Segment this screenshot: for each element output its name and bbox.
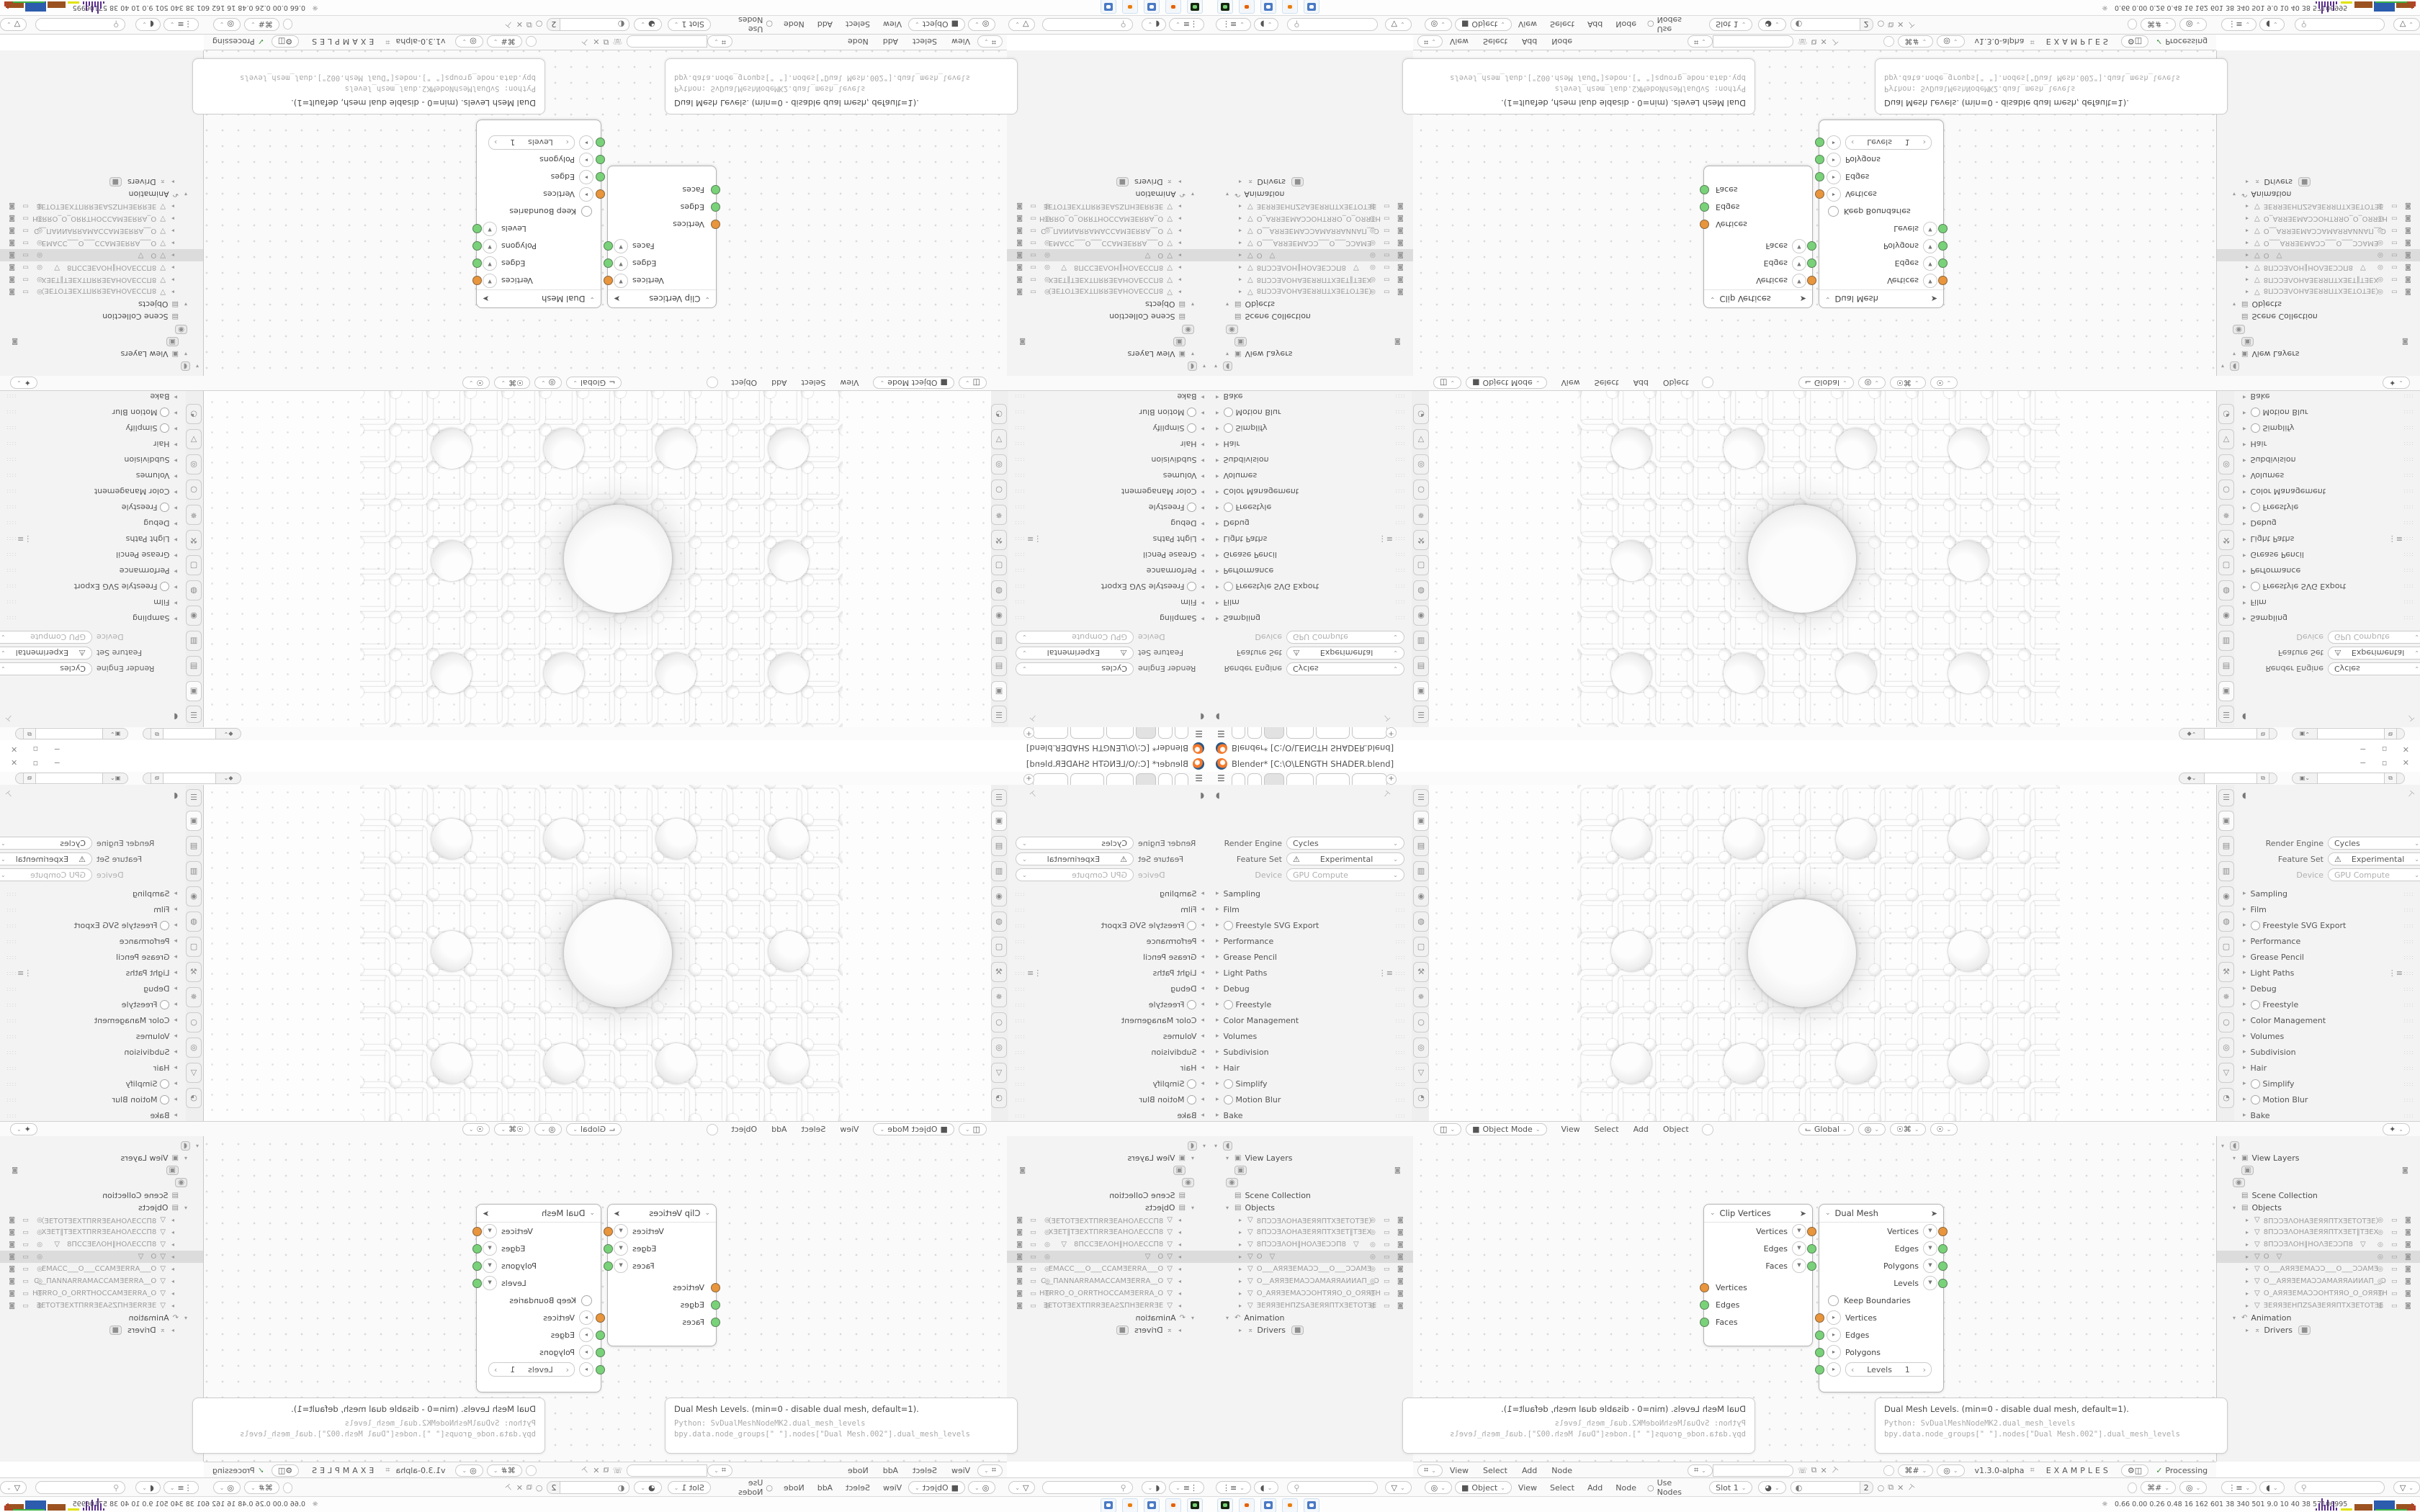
output-socket[interactable] [1807,1244,1816,1254]
mode-dropdown[interactable]: ■Object Mode⌄ [1466,377,1546,389]
world-icon[interactable]: ◉ [1226,1178,1238,1187]
outliner-object-row[interactable]: ▸ ▽ ƎEЯЯƎEHПZSАƎEЯЯПTXƎETOTƎE ◎ ▭ ◙ [1210,200,1413,212]
section-toggle[interactable] [2251,1079,2260,1089]
disable-render-icon[interactable]: ◙ [6,276,15,284]
snap-circle-icon[interactable] [526,37,537,48]
hide-eye-icon[interactable]: ◎ [2378,228,2386,235]
taskbar-app-icon[interactable] [1239,1498,1255,1512]
device-dropdown[interactable]: GPU Compute⌄ [0,631,92,644]
scene-collection-label[interactable]: Scene Collection [1109,1191,1175,1200]
properties-tab[interactable]: ◎ [1413,1038,1429,1058]
properties-section-row[interactable]: ▸ Sampling :::: [1216,886,1406,901]
properties-tab[interactable]: ▽ [2218,429,2234,449]
outliner-object-row[interactable]: ▸ ▽ 8ПƆƆƎΛOHАƎEЯЯПTXƎETOTƎE〉 ◎ ▭ ◙ [1210,286,1413,298]
disable-render-icon[interactable]: ◙ [2405,1229,2414,1236]
tree-type-icon[interactable]: ⌗⌄ [1688,1464,1713,1477]
pin-icon[interactable]: ⊤ [2405,788,2416,800]
view-layers-label[interactable]: View Layers [1245,349,1292,359]
view-menu[interactable]: View [1450,37,1469,47]
properties-section-row[interactable]: ▸ Freestyle :::: [1014,500,1204,516]
render-engine-dropdown[interactable]: Cycles⌄ [0,837,92,850]
shader-object-dropdown[interactable]: ■Object⌄ [1455,18,1512,31]
animation-label[interactable]: Animation [129,1313,169,1323]
properties-tab[interactable]: ▥ [1413,631,1429,651]
pin-icon[interactable]: ⊤ [2405,711,2416,723]
properties-section-row[interactable]: ▸ Freestyle SVG Export :::: [1014,917,1204,933]
disable-render-icon[interactable]: ◙ [1014,252,1023,259]
properties-tab[interactable]: ▢ [991,937,1007,957]
taskbar-app-icon[interactable] [1304,0,1319,14]
properties-section-row[interactable]: ▸ Subdivision :::: [1216,1044,1406,1060]
output-socket[interactable] [1938,1279,1948,1288]
plug-icon[interactable]: ▸ [1827,153,1841,167]
properties-tab[interactable]: ▥ [186,631,202,651]
material-icon-button[interactable]: ◕⌄ [634,18,661,31]
shader-editor-type[interactable]: ◎⌄ [968,1481,995,1494]
properties-tab[interactable]: ▢ [1413,555,1429,575]
hide-eye-icon[interactable]: ◎ [34,1290,42,1297]
outliner-object-row[interactable]: ▸ ▽ O_AЯЯƎEMAƆƆOHTЯЯO_O_OЯЯTH ◎ ▭ ◙ [2217,1287,2420,1300]
socket-menu-icon[interactable]: ▼ [483,1276,497,1290]
window-controls[interactable]: − ▫ ✕ [4,744,60,754]
select-menu[interactable]: Select [1550,20,1574,30]
section-toggle[interactable] [2251,582,2260,592]
disable-viewport-icon[interactable]: ▭ [2391,1302,2400,1310]
section-toggle[interactable] [2251,921,2260,930]
collapse-icon[interactable]: ⌄ [704,1210,710,1217]
hide-eye-icon[interactable]: ◎ [1370,1302,1379,1310]
outliner-object-row[interactable]: ▸ ▽ ƎEЯЯƎEHПZSАƎEЯЯПTXƎETOTƎE ◎ ▭ ◙ [2217,1300,2420,1312]
use-nodes-checkbox[interactable]: ○ [1647,20,1654,30]
outliner-object-row[interactable]: ▸ ▽ ƎEЯЯƎEHПZSАƎEЯЯПTXƎETOTƎE ◎ ▭ ◙ [1210,1300,1413,1312]
material-slot-dropdown[interactable]: Slot 1⌄ [668,18,711,31]
disable-viewport-icon[interactable]: ▭ [2391,228,2400,235]
socket-menu-icon[interactable]: ▼ [1923,239,1937,253]
pin-icon[interactable]: ⊤ [503,1482,515,1493]
disable-viewport-icon[interactable]: ▭ [1384,215,1392,222]
socket-menu-icon[interactable]: ▼ [1923,1276,1937,1290]
properties-tab[interactable]: ▣ [1413,681,1429,701]
properties-section-row[interactable]: ▸ Freestyle SVG Export :::: [6,917,177,933]
disable-viewport-icon[interactable]: ▭ [1384,1254,1392,1261]
properties-tab[interactable]: ▤ [1413,656,1429,676]
properties-section-row[interactable]: ▸ Debug :::: [1216,981,1406,996]
add-menu[interactable]: Add [1587,1483,1603,1493]
outliner-filter-button[interactable]: ▽⌄ [1008,18,1035,31]
snap-magnet-button[interactable]: ☉⌘⌄ [494,377,530,389]
properties-tab[interactable]: ▣ [2218,681,2234,701]
disable-viewport-icon[interactable]: ▭ [2391,1266,2400,1273]
animation-label[interactable]: Animation [1244,189,1284,199]
properties-tab[interactable]: ▥ [2218,631,2234,651]
output-socket[interactable] [1938,225,1948,234]
use-nodes-checkbox[interactable]: ○ [766,20,773,30]
input-socket[interactable] [596,1348,605,1357]
properties-tab[interactable]: ▤ [991,656,1007,676]
properties-section-row[interactable]: ▸ Light Paths ⋮≡ :::: [6,531,177,547]
outliner-object-row[interactable]: ▸ ▽ 8ПƆƆƎΛOHАƎEЯЯПTXƎET‖TƎEX ◎ ▭ ◙ [1210,1226,1413,1238]
scene-collection-label[interactable]: Scene Collection [1109,312,1175,321]
disable-viewport-icon[interactable]: ▭ [1028,240,1036,247]
outliner-search-input[interactable]: ⚲ [1043,18,1133,31]
properties-tab[interactable]: ▽ [1413,429,1429,449]
socket-menu-icon[interactable]: ▼ [1923,274,1937,288]
hide-eye-icon[interactable]: ◎ [1370,240,1379,247]
disable-viewport-icon[interactable]: ▭ [2391,1290,2400,1297]
title-bar[interactable]: Blender* [C:\O\LENGTH SHADER.blend] − ▫ … [0,739,1210,756]
disable-render-icon[interactable]: ◙ [6,1254,15,1261]
disable-render-icon[interactable]: ◙ [1397,1254,1406,1261]
section-toggle[interactable] [1224,1000,1233,1009]
properties-section-row[interactable]: ▸ Freestyle SVG Export :::: [2243,579,2414,595]
filter-tab-icon[interactable]: ☰ [2218,789,2234,806]
hide-eye-icon[interactable]: ◎ [2378,1278,2386,1285]
disable-viewport-icon[interactable]: ▭ [1028,1254,1036,1261]
camera-icon[interactable]: ◙ [2402,338,2411,346]
animation-label[interactable]: Animation [1244,1313,1284,1323]
disable-render-icon[interactable]: ◙ [1397,252,1406,259]
socket-menu-icon[interactable]: ▼ [483,239,497,253]
camera-icon[interactable]: ◙ [1017,338,1026,346]
view-layer-selector[interactable]: ▣⌄⧉ [4,773,128,783]
properties-section-row[interactable]: ▸ Film :::: [6,595,177,611]
outliner-object-row[interactable]: ▸ ▽ O__AЯЯƎEMAƆƆAMAЯЯAИИAП__Ɔ ◎ ▭ ◙ [0,1275,203,1287]
hide-eye-icon[interactable]: ◎ [1041,264,1050,271]
outliner-object-row[interactable]: ▸ ▽ O__AЯЯƎEMAƆƆAMAЯЯAИИAП__Ɔ ◎ ▭ ◙ [1210,1275,1413,1287]
taskbar-app-icon[interactable] [1282,1498,1298,1512]
properties-section-row[interactable]: ▸ Light Paths ⋮≡ :::: [1216,965,1406,981]
properties-section-row[interactable]: ▸ Debug :::: [2243,981,2414,996]
editor-type-button[interactable]: ⌗⌄ [977,36,1003,48]
plug-icon[interactable]: ▸ [1827,170,1841,184]
disable-render-icon[interactable]: ◙ [6,1241,15,1248]
properties-tab[interactable]: ◎ [2218,454,2234,474]
properties-section-row[interactable]: ▸ Motion Blur :::: [1216,1092,1406,1107]
add-menu[interactable]: Add [1587,20,1603,30]
disable-viewport-icon[interactable]: ▭ [20,228,29,235]
hide-eye-icon[interactable]: ◎ [2378,1266,2386,1273]
outliner-display-mode[interactable]: ⋮≡⌄ [163,1481,199,1494]
disable-render-icon[interactable]: ◙ [1397,1241,1406,1248]
filter-tab-icon[interactable]: ☰ [1413,706,1429,723]
drivers-label[interactable]: Drivers [127,1326,156,1335]
scene-name-field[interactable] [163,728,215,739]
taskbar-app-icon[interactable] [1122,0,1138,14]
snap-mode-button[interactable]: ⌘#⌄ [487,1464,522,1477]
properties-tab[interactable]: ◍ [1413,580,1429,600]
hide-eye-icon[interactable]: ◎ [1041,276,1050,284]
output-socket[interactable] [604,276,613,286]
outliner-filter-button[interactable]: ▽⌄ [1385,18,1412,31]
shader-object-dropdown[interactable]: ■Object⌄ [1455,1481,1512,1494]
processing-toggle[interactable]: Processing [2165,37,2208,47]
view-layer-field[interactable] [2318,728,2385,739]
dual-mesh-node[interactable]: ⌄Dual Mesh➤ Vertices▼Edges▼Polygons▼Leve… [476,120,601,308]
output-socket[interactable] [472,1244,482,1254]
properties-tab[interactable]: ▢ [186,555,202,575]
properties-tab[interactable]: ▤ [186,836,202,856]
disable-render-icon[interactable]: ◙ [1397,1278,1406,1285]
properties-tab[interactable]: ▽ [1413,1063,1429,1083]
outliner-search-input[interactable]: ⚲ [1287,18,1377,31]
view-layers-label[interactable]: View Layers [121,349,169,359]
add-menu[interactable]: Add [883,1466,898,1475]
outliner-search-input[interactable]: ⚲ [1287,1481,1377,1494]
hide-eye-icon[interactable]: ◎ [34,1278,42,1285]
material-user-count[interactable]: 2 [1860,1481,1873,1494]
scene-collection-label[interactable]: Scene Collection [1245,312,1310,321]
properties-section-row[interactable]: ▸ Freestyle SVG Export :::: [6,579,177,595]
levels-stepper[interactable]: ‹Levels1› [488,1362,575,1377]
outliner-type-icon[interactable]: ◖⌄ [1142,1481,1167,1494]
disable-render-icon[interactable]: ◙ [6,1290,15,1297]
select-menu[interactable]: Select [846,1483,870,1493]
object-menu[interactable]: Object [1663,1125,1689,1134]
properties-section-row[interactable]: ▸ Performance :::: [2243,563,2414,579]
properties-section-row[interactable]: ▸ Grease Pencil :::: [1216,949,1406,965]
taskbar-app-icon[interactable] [1101,1498,1116,1512]
taskbar-app-icon[interactable] [1165,0,1181,14]
disable-viewport-icon[interactable]: ▭ [2391,1217,2400,1224]
disable-render-icon[interactable]: ◙ [1014,1290,1023,1297]
properties-tab[interactable]: ◔ [991,1088,1007,1108]
hide-eye-icon[interactable]: ◎ [1370,1241,1379,1248]
view-layers-label[interactable]: View Layers [2251,1153,2299,1163]
disable-viewport-icon[interactable]: ▭ [20,1229,29,1236]
hide-eye-icon[interactable]: ◎ [1370,203,1379,210]
disable-render-icon[interactable]: ◙ [1014,264,1023,271]
properties-section-row[interactable]: ▸ Bake :::: [2243,1107,2414,1121]
plug-icon[interactable]: ▸ [579,1345,593,1359]
world-icon[interactable]: ◉ [1226,325,1238,334]
properties-tab[interactable]: ▽ [186,429,202,449]
outliner-object-row[interactable]: ▸ ▽ O_AЯЯƎEMAƆƆOHTЯЯO_O_OЯЯTH ◎ ▭ ◙ [1007,212,1210,225]
feature-set-dropdown[interactable]: ⚠Experimental⌄ [2328,852,2420,865]
section-toggle[interactable] [160,1095,169,1104]
workspace-tab[interactable] [1158,727,1173,739]
properties-section-row[interactable]: ▸ Film :::: [6,901,177,917]
hide-eye-icon[interactable]: ◎ [2378,1217,2386,1224]
disable-render-icon[interactable]: ◙ [1397,228,1406,235]
properties-section-row[interactable]: ▸ Subdivision :::: [2243,452,2414,468]
socket-menu-icon[interactable]: ▼ [483,222,497,236]
outliner-object-row[interactable]: ▸ ▽ O ▽ ◎ ▭ ◙ [1007,1251,1210,1263]
socket-menu-icon[interactable]: ▼ [1923,1224,1937,1238]
plug-icon[interactable]: ▸ [579,135,593,150]
buffer-icon[interactable]: ➤ [1931,294,1937,304]
editor-type-button[interactable]: ◫⌄ [959,377,987,389]
hide-eye-icon[interactable]: ◎ [2378,215,2386,222]
animation-label[interactable]: Animation [129,189,169,199]
keep-boundaries-checkbox[interactable] [1828,1295,1839,1306]
drivers-label[interactable]: Drivers [127,177,156,186]
workspace-tabs[interactable] [1232,773,1387,785]
outliner-object-row[interactable]: ▸ ▽ O_AЯЯƎEMAƆƆOHTЯЯO_O_OЯЯTH ◎ ▭ ◙ [0,212,203,225]
snap-mode-button[interactable]: ⌘#⌄ [244,18,279,31]
drivers-label[interactable]: Drivers [1134,177,1163,186]
outliner-object-row[interactable]: ▸ ▽ 8ПƆƆƎΛOH‖HOΛƎEƆƆП8 ▽ ◎ ▭ ◙ [0,1238,203,1251]
disable-viewport-icon[interactable]: ▭ [1028,289,1036,296]
orientation-dropdown[interactable]: ⌙Global⌄ [566,377,622,389]
copy-view-layer-icon[interactable]: ⧉ [2385,728,2397,739]
node-menu[interactable]: Node [784,20,805,30]
properties-tab[interactable]: ◔ [2218,404,2234,424]
socket-menu-icon[interactable]: ▼ [614,1259,628,1273]
properties-section-row[interactable]: ▸ Debug :::: [1216,516,1406,531]
material-name-field[interactable]: ◐ [1791,1481,1860,1494]
shield-icon[interactable]: ○ [536,1483,543,1493]
socket-menu-icon[interactable]: ▼ [614,256,628,271]
plug-icon[interactable]: ▸ [1827,187,1841,202]
properties-tab[interactable]: ✵ [186,505,202,525]
outliner-object-row[interactable]: ▸ ▽ O__AЯЯƎEMAƆƆAMAЯЯAИИAП__Ɔ ◎ ▭ ◙ [2217,225,2420,237]
hide-eye-icon[interactable]: ◎ [1370,228,1379,235]
viewport-3d[interactable] [204,785,991,1121]
outliner-object-row[interactable]: ▸ ▽ O___AЯЯƎEMAƆƆ___O___ƆƆAMƎ ◎ ▭ ◙ [1007,1263,1210,1275]
properties-section-row[interactable]: ▸ Light Paths ⋮≡ :::: [2243,531,2414,547]
properties-section-row[interactable]: ▸ Color Management :::: [2243,1012,2414,1028]
input-socket[interactable] [711,186,720,195]
node-menu[interactable]: Node [848,1466,869,1475]
outliner-object-row[interactable]: ▸ ▽ O__AЯЯƎEMAƆƆAMAЯЯAИИAП__Ɔ ◎ ▭ ◙ [1210,225,1413,237]
hide-eye-icon[interactable]: ◎ [2378,289,2386,296]
scene-collection-label[interactable]: Scene Collection [2251,1191,2317,1200]
properties-section-row[interactable]: ▸ Motion Blur :::: [1014,405,1204,420]
properties-icon[interactable]: ◖ [2230,1141,2239,1151]
properties-tab[interactable]: ◍ [2218,912,2234,932]
shield-icon[interactable]: ○ [536,20,543,30]
disable-viewport-icon[interactable]: ▭ [20,1241,29,1248]
unlink-icon[interactable]: ✕ [1821,1466,1827,1475]
shading-button[interactable]: ✦⌄ [10,1123,37,1135]
buffer-icon[interactable]: ➤ [614,1209,620,1218]
disable-viewport-icon[interactable]: ▭ [1028,1229,1036,1236]
properties-icon[interactable]: ◖ [1188,361,1197,371]
socket-menu-icon[interactable]: ▼ [1792,1241,1806,1256]
output-socket[interactable] [604,1261,613,1271]
plug-icon[interactable]: ▸ [579,1310,593,1325]
properties-section-row[interactable]: ▸ Simplify :::: [1216,1076,1406,1092]
snap-circle-icon[interactable] [526,1465,537,1476]
properties-tab[interactable]: ◍ [186,912,202,932]
scene-collection-label[interactable]: Scene Collection [1245,1191,1310,1200]
filter-tab-icon[interactable]: ☰ [991,706,1007,723]
objects-label[interactable]: Objects [2251,1203,2282,1212]
add-menu[interactable]: Add [817,1483,833,1493]
properties-tab[interactable]: ⚒ [2218,530,2234,550]
mode-dropdown[interactable]: ■Object Mode⌄ [1466,1123,1546,1135]
filter-tab-icon[interactable]: ☰ [991,789,1007,806]
properties-section-row[interactable]: ▸ Volumes :::: [1216,468,1406,484]
material-icon-button[interactable]: ◕⌄ [634,1481,661,1494]
material-icon-button[interactable]: ◕⌄ [1758,1481,1785,1494]
disable-viewport-icon[interactable]: ▭ [1028,252,1036,259]
properties-section-row[interactable]: ▸ Debug :::: [1014,516,1204,531]
material-user-count[interactable]: 2 [547,18,560,31]
drivers-label[interactable]: Drivers [2264,177,2293,186]
workspace-tab[interactable] [1316,727,1350,739]
render-engine-dropdown[interactable]: Cycles⌄ [0,662,92,675]
search-circle-icon[interactable] [707,1124,718,1135]
disable-render-icon[interactable]: ◙ [2405,252,2414,259]
add-workspace-button[interactable]: + [1023,727,1034,738]
outliner-filter-button[interactable]: ▽⌄ [0,1481,27,1494]
disable-render-icon[interactable]: ◙ [1397,1302,1406,1310]
snap-mode-button[interactable]: ⌘#⌄ [2141,18,2176,31]
select-menu[interactable]: Select [1550,1483,1574,1493]
properties-section-row[interactable]: ▸ Sampling :::: [1216,611,1406,626]
properties-section-row[interactable]: ▸ Volumes :::: [2243,1028,2414,1044]
workspace-tab[interactable] [1136,773,1156,785]
viewport-3d[interactable] [204,391,991,727]
disable-render-icon[interactable]: ◙ [1397,1217,1406,1224]
outliner-filter-button[interactable]: ▽⌄ [0,18,27,31]
properties-section-row[interactable]: ▸ Light Paths ⋮≡ :::: [1014,965,1204,981]
disable-render-icon[interactable]: ◙ [1014,289,1023,296]
animation-label[interactable]: Animation [1136,189,1176,199]
node-menu[interactable]: Node [1551,37,1572,47]
pin-icon[interactable]: ⊤ [1829,1464,1840,1476]
disable-viewport-icon[interactable]: ▭ [1384,1290,1392,1297]
disable-viewport-icon[interactable]: ▭ [1384,228,1392,235]
hide-eye-icon[interactable]: ◎ [34,264,42,271]
pin-icon[interactable]: ⊤ [1905,1482,1917,1493]
disable-viewport-icon[interactable]: ▭ [20,240,29,247]
material-name-field[interactable]: ◐ [560,1481,629,1494]
properties-tab[interactable]: ⚒ [991,530,1007,550]
snap-element-button[interactable]: ◎⌄ [2179,18,2207,31]
outliner-object-row[interactable]: ▸ ▽ O ▽ ◎ ▭ ◙ [2217,249,2420,261]
socket-menu-icon[interactable]: ▼ [1792,239,1806,253]
properties-tab[interactable]: ▣ [1413,811,1429,831]
disable-viewport-icon[interactable]: ▭ [1384,289,1392,296]
plug-icon[interactable]: ▸ [1827,1328,1841,1342]
properties-section-row[interactable]: ▸ Freestyle SVG Export :::: [1014,579,1204,595]
outliner-object-row[interactable]: ▸ ▽ ƎEЯЯƎEHПZSАƎEЯЯПTXƎETOTƎE ◎ ▭ ◙ [0,200,203,212]
properties-section-row[interactable]: ▸ Subdivision :::: [6,452,177,468]
disable-viewport-icon[interactable]: ▭ [2391,203,2400,210]
snap-mode-button[interactable]: ⌘#⌄ [487,36,522,48]
properties-section-row[interactable]: ▸ Performance :::: [2243,933,2414,949]
properties-tab[interactable]: ✵ [2218,987,2234,1007]
properties-tab[interactable]: ▽ [2218,1063,2234,1083]
clip-vertices-node[interactable]: ⌄Clip Vertices➤ Vertices▼Edges▼Faces▼ Ve… [1703,166,1813,308]
socket-menu-icon[interactable]: ▼ [1923,256,1937,271]
properties-tab[interactable]: ▤ [1413,836,1429,856]
outliner-object-row[interactable]: ▸ ▽ 8ПƆƆƎΛOH‖HOΛƎEƆƆП8 ▽ ◎ ▭ ◙ [1007,261,1210,274]
section-toggle[interactable] [1224,503,1233,513]
disable-viewport-icon[interactable]: ▭ [20,203,29,210]
disable-render-icon[interactable]: ◙ [1397,203,1406,210]
input-socket[interactable] [596,1331,605,1340]
dual-mesh-node[interactable]: ⌄Dual Mesh➤ Vertices▼Edges▼Polygons▼Leve… [1819,120,1944,308]
hide-eye-icon[interactable]: ◎ [2378,1229,2386,1236]
device-dropdown[interactable]: GPU Compute⌄ [2328,631,2420,644]
add-menu[interactable]: Add [1522,1466,1537,1475]
material-icon-button[interactable]: ◕⌄ [1758,18,1785,31]
disable-viewport-icon[interactable]: ▭ [1384,276,1392,284]
disable-render-icon[interactable]: ◙ [6,203,15,210]
taskbar-app-icon[interactable] [1260,1498,1276,1512]
copy-icon[interactable]: ⧉ [1888,1482,1894,1493]
disable-render-icon[interactable]: ◙ [2405,1290,2414,1297]
properties-tab[interactable]: ◍ [991,580,1007,600]
levels-stepper[interactable]: ‹Levels1› [1845,1362,1932,1377]
properties-tab[interactable]: ▣ [991,681,1007,701]
properties-section-row[interactable]: ▸ Freestyle :::: [1216,500,1406,516]
section-toggle[interactable] [2251,424,2260,433]
properties-tab[interactable]: ◍ [2218,580,2234,600]
